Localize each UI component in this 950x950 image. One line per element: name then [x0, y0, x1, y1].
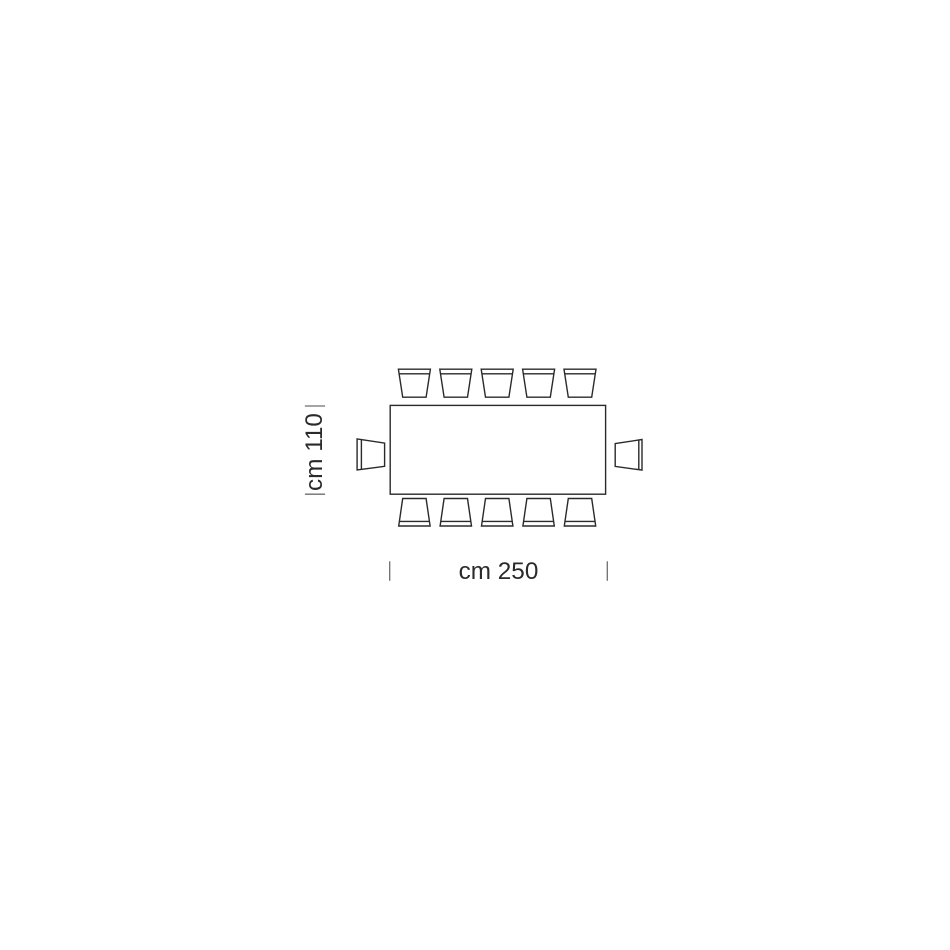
svg-text:cm 250: cm 250: [459, 558, 539, 585]
svg-text:cm 110: cm 110: [301, 413, 328, 491]
